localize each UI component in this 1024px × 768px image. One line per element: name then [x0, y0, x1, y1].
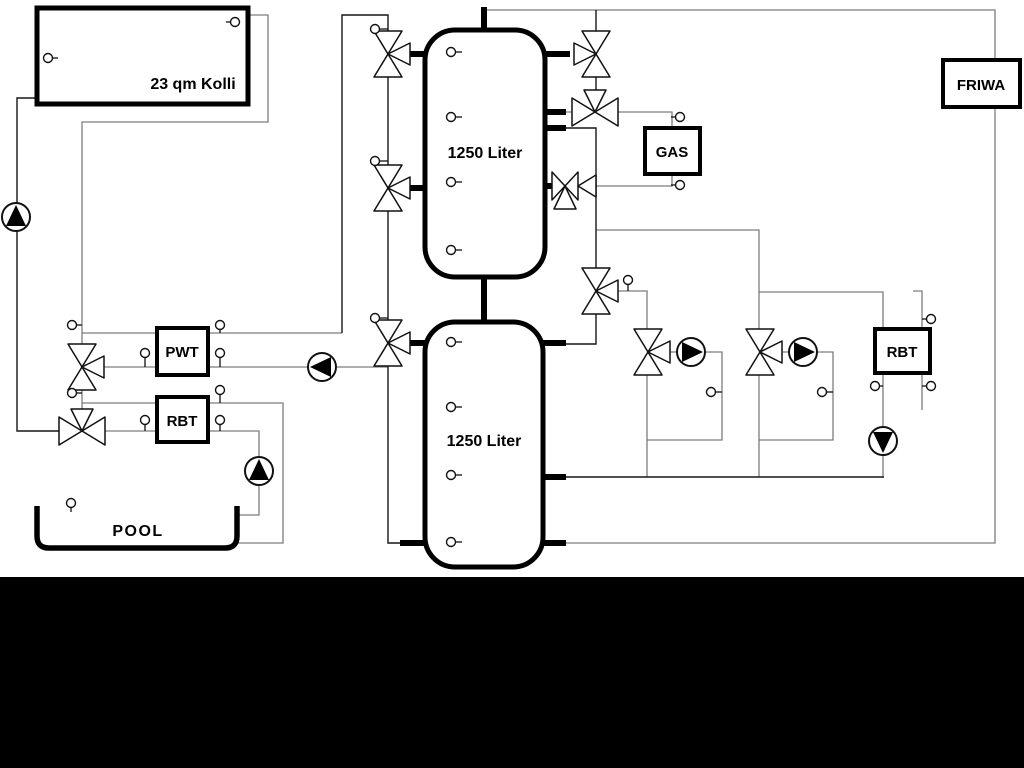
pump-icon — [245, 457, 273, 485]
friwa-box: FRIWA — [943, 60, 1020, 107]
friwa-label: FRIWA — [957, 77, 1005, 94]
gas-label: GAS — [656, 144, 689, 161]
buffer-tank-bottom: 1250 Liter — [425, 322, 543, 567]
rbt-box-right: RBT — [875, 329, 930, 373]
bottom-black-bar — [0, 577, 1024, 768]
pool-label: POOL — [112, 523, 163, 540]
rbt-box-left: RBT — [157, 397, 208, 442]
pump-icon — [308, 353, 336, 381]
tank-bottom-label: 1250 Liter — [447, 433, 522, 450]
pwt-box: PWT — [157, 328, 208, 375]
rbt-left-label: RBT — [167, 413, 198, 430]
pwt-label: PWT — [165, 344, 198, 361]
rbt-right-label: RBT — [887, 344, 918, 361]
gas-boiler-box: GAS — [645, 128, 700, 174]
pump-icon — [2, 203, 30, 231]
solar-collector-box: 23 qm Kolli — [37, 8, 248, 104]
collector-label: 23 qm Kolli — [150, 76, 235, 93]
buffer-tank-top: 1250 Liter — [425, 30, 545, 277]
tank-top-label: 1250 Liter — [448, 145, 523, 162]
schematic-page: 23 qm Kolli 1250 Liter 1250 Liter GAS FR… — [0, 0, 1024, 768]
hydraulic-schematic: 23 qm Kolli 1250 Liter 1250 Liter GAS FR… — [0, 0, 1024, 768]
pump-icon — [677, 338, 705, 366]
pump-icon — [789, 338, 817, 366]
pump-icon — [869, 427, 897, 455]
